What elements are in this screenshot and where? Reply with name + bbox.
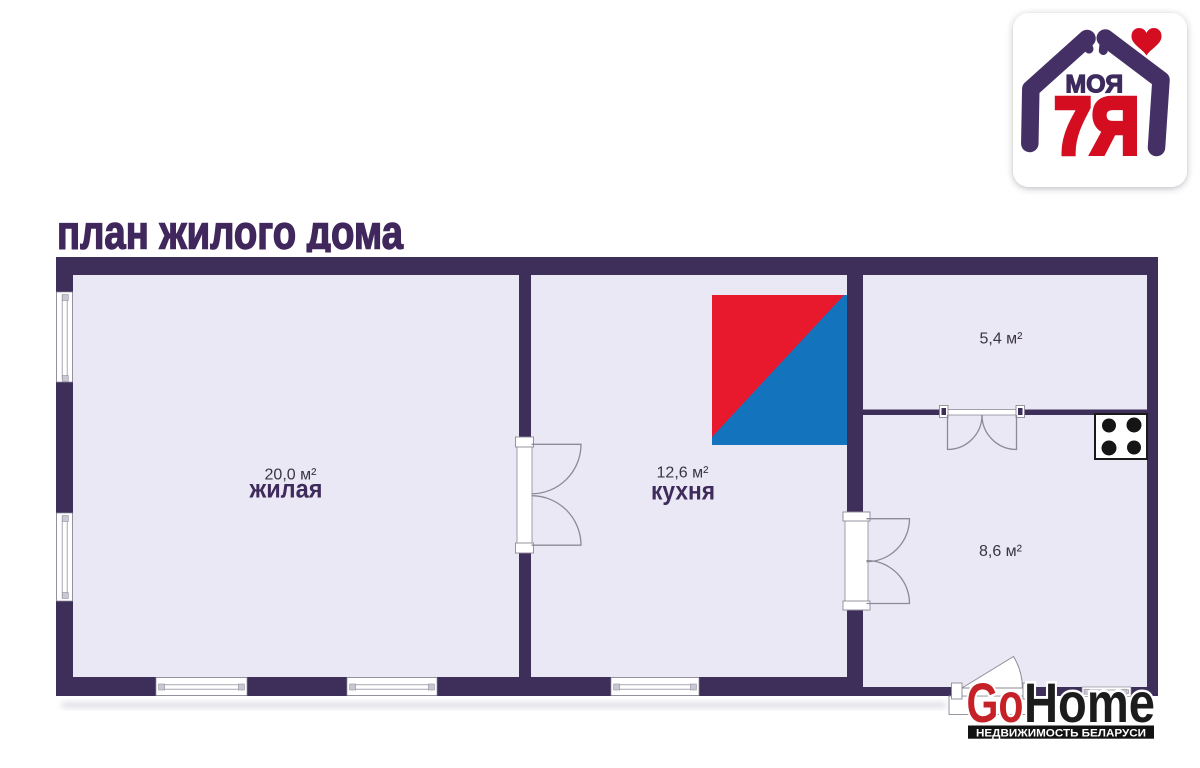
svg-text:Go: Go xyxy=(967,671,1024,734)
svg-text:НЕДВИЖИМОСТЬ БЕЛАРУСИ: НЕДВИЖИМОСТЬ БЕЛАРУСИ xyxy=(976,728,1146,740)
svg-text:5,4 м²: 5,4 м² xyxy=(979,330,1023,347)
svg-text:7Я: 7Я xyxy=(1054,82,1139,171)
svg-text:Home: Home xyxy=(1024,671,1155,734)
svg-text:жилая: жилая xyxy=(249,474,323,504)
svg-text:8,6 м²: 8,6 м² xyxy=(979,543,1023,560)
svg-text:кухня: кухня xyxy=(651,476,715,506)
svg-text:план жилого дома: план жилого дома xyxy=(57,206,404,259)
